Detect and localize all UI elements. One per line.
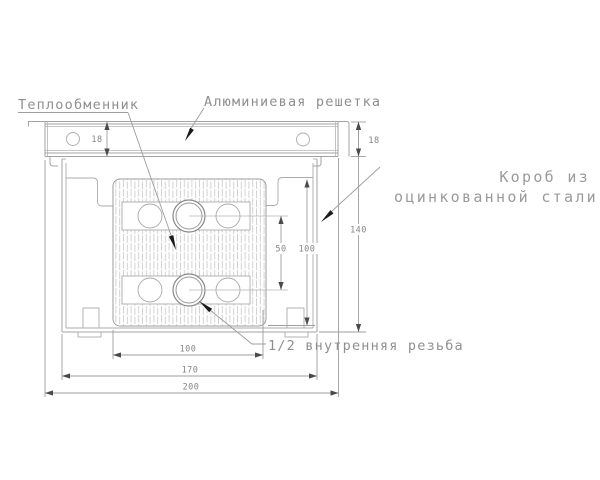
dim-core-width: 100 [113, 345, 263, 356]
dim-grille-height-right: 18 [359, 122, 380, 157]
engineering-drawing-sheet: 18 140 18 100 50 [0, 0, 600, 480]
thread-label: 1/2 внутренняя резьба [268, 338, 464, 354]
convector-section-drawing: 18 140 18 100 50 [0, 0, 600, 480]
callouts: Теплообменник Алюминиевая решетка Короб … [18, 94, 598, 354]
callout-aluminum-grille: Алюминиевая решетка [185, 94, 381, 141]
dim-text: 18 [91, 135, 102, 145]
leader-arrow-icon [185, 128, 194, 141]
dim-overall-width: 200 [45, 383, 339, 394]
leader-arrow-icon [321, 210, 334, 222]
dim-pipe-spacing: 50 [273, 216, 289, 290]
heat-exchanger-core [113, 179, 288, 326]
grille-left-lip [29, 122, 46, 127]
dim-box-width: 170 [62, 366, 317, 377]
foot-pad-left [78, 332, 101, 337]
grille-left-clip [50, 157, 58, 167]
dim-text: 18 [368, 136, 379, 146]
dim-core-height: 100 [296, 180, 318, 326]
dim-text: 100 [299, 245, 316, 255]
grille-mounting-hole-right [297, 133, 310, 146]
steel-box-label-line2: оцинкованной стали [394, 188, 598, 206]
dim-text: 100 [180, 345, 197, 355]
foot-pad-right [285, 332, 308, 337]
dim-grille-height-left: 18 [91, 122, 107, 157]
dim-text: 50 [275, 245, 286, 255]
box-liner-step-left [66, 178, 113, 206]
foot-left [83, 308, 99, 328]
heat-exchanger-label: Теплообменник [18, 97, 139, 113]
dim-text: 170 [182, 366, 199, 376]
foot-right [287, 308, 304, 328]
dim-text: 140 [350, 226, 367, 236]
grille-right-tab [338, 122, 349, 157]
grille-mounting-hole-left [67, 133, 80, 146]
steel-box-label-line1: Короб из [499, 168, 590, 186]
aluminum-grille-label: Алюминиевая решетка [204, 94, 381, 110]
dim-text: 200 [183, 383, 200, 393]
callout-steel-box: Короб из оцинкованной стали [321, 167, 598, 222]
aluminum-grille [29, 122, 350, 167]
box-liner-step-right [266, 178, 313, 206]
